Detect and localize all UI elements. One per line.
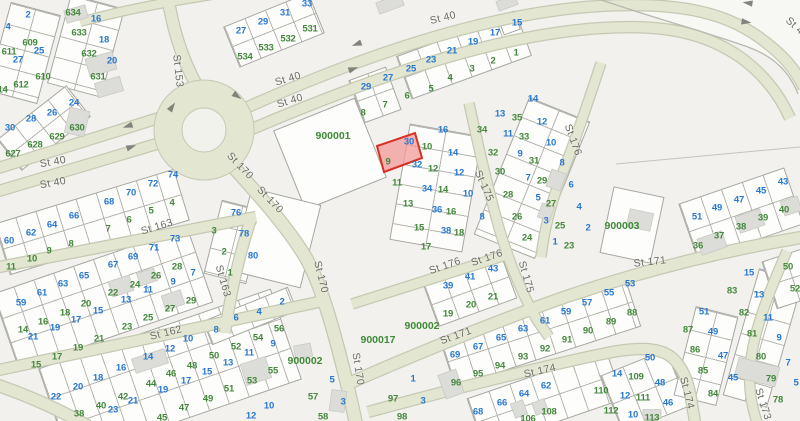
parcel-number-label: 16 (438, 125, 448, 136)
parcel-number-label: 65 (496, 333, 506, 344)
parcel-number-label: 23 (426, 55, 436, 66)
parcel-number-label: 52 (790, 284, 800, 295)
parcel-number-label: 21 (488, 292, 498, 303)
parcel-number-label: 85 (698, 366, 708, 377)
parcel-number-label: 65 (79, 271, 89, 282)
parcel-number-label: 93 (518, 352, 528, 363)
parcel-number-label: 7 (382, 100, 387, 111)
parcel-number-label: 50 (645, 353, 655, 364)
parcel-number-label: 5 (329, 375, 334, 386)
parcel-number-label: 70 (126, 188, 136, 199)
parcel-number-label: 18 (99, 35, 109, 46)
parcel-number-label: 79 (766, 374, 776, 385)
parcel-number-label: 46 (166, 369, 176, 380)
parcel-number-label: 631 (90, 72, 105, 83)
parcel-number-label: 80 (248, 251, 258, 262)
parcel-number-label: 46 (663, 398, 673, 409)
parcel-number-label: 44 (146, 379, 156, 390)
parcel-number-label: 27 (546, 199, 556, 210)
parcel-number-label: 38 (736, 222, 746, 233)
parcel-number-label: 64 (519, 389, 529, 400)
parcel-number-label: 4 (576, 202, 581, 213)
parcel-number-label: 610 (35, 72, 50, 83)
parcel-number-label: 13 (403, 199, 413, 210)
street-name-label: St 176 (428, 255, 463, 277)
parcel-number-label: 18 (60, 308, 70, 319)
parcel-number-label: 24 (130, 280, 140, 291)
parcel-number-label: 32 (488, 148, 498, 159)
parcel-number-label: 62 (26, 228, 36, 239)
parcel-number-label: 28 (172, 262, 182, 273)
parcel-number-label: 21 (94, 334, 104, 345)
parcel-number-label: 20 (107, 56, 117, 67)
parcel-number-label: 8 (360, 108, 365, 119)
parcel-number-label: 62 (541, 381, 551, 392)
parcel-number-label: 630 (69, 123, 84, 134)
street-name-label: St 170 (311, 260, 331, 295)
parcel-number-label: 10 (264, 401, 274, 412)
parcel-number-label: 27 (165, 304, 175, 315)
parcel-number-label: 25 (143, 313, 153, 324)
parcel-number-label: 21 (447, 46, 457, 57)
parcel-number-label: 13 (495, 109, 505, 120)
parcel-number-label: 47 (734, 195, 744, 206)
parcel-number-label: 25 (406, 64, 416, 75)
parcel-number-label: 55 (604, 288, 614, 299)
parcel-number-label: 19 (468, 37, 478, 48)
parcel-number-label: 50 (783, 262, 793, 273)
street-name-label: St 40 (274, 69, 303, 88)
district-code-label: 900002 (404, 320, 439, 332)
parcel-number-label: 6 (233, 313, 238, 324)
parcel-number-label: 7 (525, 173, 530, 184)
map-canvas[interactable]: 6341663318632206312460925611276106126142… (0, 0, 800, 421)
parcel-number-label: 61 (37, 288, 47, 299)
parcel-number-label: 97 (388, 394, 398, 405)
parcel-number-label: 3 (420, 396, 425, 407)
parcel-number-label: 43 (778, 177, 788, 188)
parcel-number-label: 78 (773, 395, 783, 406)
street-name-label: St 176 (562, 123, 584, 158)
parcel-number-label: 72 (148, 179, 158, 190)
parcel-number-label: 26 (151, 271, 161, 282)
parcel-number-label: 18 (454, 228, 464, 239)
parcel-number-label: 59 (561, 307, 571, 318)
parcel-number-label: 67 (473, 342, 483, 353)
parcel-number-label: 4 (256, 307, 261, 318)
parcel-number-label: 49 (712, 203, 722, 214)
parcel-number-label: 51 (224, 384, 234, 395)
parcel-number-label: 20 (73, 382, 83, 393)
parcel-number-label: 54 (253, 333, 263, 344)
parcel-number-label: 634 (65, 8, 80, 19)
parcel-number-label: 61 (540, 316, 550, 327)
parcel-number-label: 33 (302, 0, 312, 10)
parcel-number-label: 18 (93, 373, 103, 384)
parcel-number-label: 53 (247, 376, 257, 387)
parcel-number-label: 29 (537, 176, 547, 187)
street-name-label: St 171 (633, 254, 667, 269)
parcel-number-label: 2 (279, 297, 284, 308)
parcel-number-label: 11 (244, 348, 254, 359)
parcel-number-label: 112 (604, 406, 619, 417)
street-name-label: St 170 (224, 150, 255, 182)
parcel-number-label: 53 (625, 279, 635, 290)
parcel-number-label: 11 (143, 285, 153, 296)
parcel-number-label: 20 (466, 300, 476, 311)
street-name-label: St 153 (170, 54, 185, 88)
parcel-number-label: 74 (168, 170, 178, 181)
parcel-number-label: 38 (74, 409, 84, 420)
parcel-number-label: 629 (49, 132, 64, 143)
parcel-number-label: 4 (169, 198, 174, 209)
parcel-number-label: 47 (179, 403, 189, 414)
parcel-number-label: 5 (148, 206, 153, 217)
parcel-number-label: 45 (728, 373, 738, 384)
parcel-number-label: 16 (446, 207, 456, 218)
parcel-number-label: 13 (754, 290, 764, 301)
parcel-number-label: 64 (47, 220, 57, 231)
parcel-number-label: 84 (708, 389, 718, 400)
street-name-label: St 162 (149, 323, 184, 343)
parcel-number-label: 19 (158, 385, 168, 396)
parcel-number-label: 40 (96, 401, 106, 412)
parcel-number-label: 24 (522, 233, 532, 244)
parcel-number-label: 1 (552, 237, 557, 248)
parcel-number-label: 73 (170, 234, 180, 245)
parcel-number-label: 59 (16, 298, 26, 309)
street-name-label: St 40 (39, 175, 67, 191)
parcel-number-label: 15 (93, 306, 103, 317)
parcel-number-label: 55 (268, 366, 278, 377)
parcel-number-label: 66 (497, 398, 507, 409)
parcel-number-label: 109 (628, 372, 643, 383)
parcel-number-label: 86 (690, 345, 700, 356)
parcel-number-label: 22 (51, 392, 61, 403)
parcel-number-label: 111 (636, 393, 650, 404)
parcel-number-label: 12 (165, 344, 175, 355)
parcel-number-label: 9 (385, 157, 390, 168)
parcel-number-label: 56 (274, 324, 284, 335)
parcel-number-label: 14 (448, 148, 458, 159)
parcel-number-label: 628 (27, 140, 42, 151)
parcel-number-label: 98 (397, 412, 407, 421)
parcel-number-label: 106 (520, 414, 535, 421)
parcel-number-label: 25 (34, 46, 44, 57)
street-name-label: St 40 (429, 9, 458, 27)
parcel-number-label: 12 (428, 164, 438, 175)
parcel-number-label: 81 (747, 329, 757, 340)
parcel-number-label: 16 (116, 363, 126, 374)
parcel-number-label: 10 (463, 189, 473, 200)
parcel-number-label: 91 (562, 335, 572, 346)
parcel-number-label: 8 (213, 325, 218, 336)
parcel-number-label: 17 (52, 352, 62, 363)
parcel-number-label: 110 (594, 386, 609, 397)
parcel-number-label: 24 (69, 98, 79, 109)
parcel-number-label: 48 (187, 361, 197, 372)
parcel-number-label: 96 (451, 378, 461, 389)
parcel-number-label: 5 (428, 84, 433, 95)
parcel-number-label: 9 (270, 339, 275, 350)
parcel-number-label: 36 (693, 241, 703, 252)
parcel-number-label: 532 (280, 34, 295, 45)
parcel-number-label: 3 (469, 64, 474, 75)
parcel-number-label: 34 (477, 125, 487, 136)
parcel-number-label: 7 (190, 268, 195, 279)
parcel-number-label: 8 (68, 239, 73, 250)
parcel-number-label: 27 (236, 26, 246, 37)
parcel-number-label: 30 (404, 137, 414, 148)
parcel-number-label: 9 (776, 333, 781, 344)
parcel-number-label: 49 (203, 394, 213, 405)
parcel-number-label: 9 (46, 246, 51, 257)
parcel-number-label: 633 (71, 28, 86, 39)
parcel-number-label: 23 (564, 241, 574, 252)
parcel-number-label: 1 (410, 374, 415, 385)
parcel-number-label: 94 (495, 361, 505, 372)
street-name-label: St 175 (516, 260, 537, 295)
parcel-number-label: 6 (568, 180, 573, 191)
parcel-number-label: 27 (383, 73, 393, 84)
parcel-number-label: 8 (559, 158, 564, 169)
street-name-label: St 40 (39, 154, 67, 170)
parcel-number-label: 10 (628, 410, 638, 421)
parcel-number-label: 26 (47, 108, 57, 119)
district-code-label: 900003 (604, 220, 639, 232)
parcel-number-label: 45 (157, 413, 167, 421)
parcel-number-label: 58 (318, 412, 328, 421)
parcel-number-label: 28 (26, 114, 36, 125)
parcel-number-label: 49 (708, 327, 718, 338)
parcel-number-label: 627 (5, 149, 20, 160)
parcel-number-label: 69 (128, 252, 138, 263)
parcel-number-label: 42 (118, 392, 128, 403)
parcel-number-label: 17 (421, 242, 431, 253)
parcel-number-label: 90 (583, 326, 593, 337)
parcel-number-label: 11 (503, 129, 513, 140)
parcel-number-label: 66 (69, 211, 79, 222)
parcel-number-label: 10 (546, 138, 556, 149)
parcel-number-label: 36 (432, 205, 442, 216)
parcel-number-label: 3 (340, 397, 345, 408)
parcel-number-label: 21 (28, 332, 38, 343)
street-name-label: St 40 (783, 15, 800, 42)
parcel-number-label: 26 (512, 212, 522, 223)
parcel-number-label: 31 (529, 156, 539, 167)
parcel-number-label: 78 (239, 229, 249, 240)
parcel-number-label: 19 (443, 309, 453, 320)
parcel-number-label: 12 (537, 117, 547, 128)
parcel-number-label: 13 (121, 295, 131, 306)
parcel-number-label: 29 (186, 296, 196, 307)
district-code-label: 900002 (287, 355, 322, 367)
parcel-number-label: 87 (683, 325, 693, 336)
parcel-number-label: 2 (25, 10, 30, 21)
parcel-number-label: 2 (490, 56, 495, 67)
street-name-label: St 175 (472, 169, 496, 204)
parcel-number-label: 23 (122, 322, 132, 333)
street-name-label: St 171 (439, 325, 474, 347)
map-labels-layer: 6341663318632206312460925611276106126142… (0, 0, 800, 421)
parcel-number-label: 63 (518, 324, 528, 335)
parcel-number-label: 83 (727, 286, 737, 297)
parcel-number-label: 71 (149, 243, 159, 254)
parcel-number-label: 41 (465, 272, 475, 283)
parcel-number-label: 533 (258, 43, 273, 54)
parcel-number-label: 32 (412, 160, 422, 171)
parcel-number-label: 11 (392, 178, 402, 189)
parcel-number-label: 92 (540, 344, 550, 355)
parcel-number-label: 10 (183, 334, 193, 345)
street-name-label: St 170 (254, 184, 285, 216)
parcel-number-label: 8 (479, 212, 484, 223)
parcel-number-label: 51 (692, 212, 702, 223)
parcel-number-label: 108 (541, 407, 556, 418)
parcel-number-label: 11 (763, 313, 773, 324)
parcel-number-label: 6 (126, 215, 131, 226)
parcel-number-label: 12 (454, 168, 464, 179)
parcel-number-label: 12 (620, 391, 630, 402)
parcel-number-label: 89 (606, 317, 616, 328)
district-code-label: 900017 (360, 334, 395, 346)
parcel-number-label: 31 (280, 8, 290, 19)
parcel-number-label: 6 (404, 91, 409, 102)
parcel-number-label: 68 (473, 407, 483, 418)
parcel-number-label: 23 (108, 405, 118, 416)
parcel-number-label: 20 (81, 299, 91, 310)
parcel-number-label: 14 (612, 369, 622, 380)
parcel-number-label: 15 (744, 268, 754, 279)
parcel-number-label: 17 (181, 376, 191, 387)
parcel-number-label: 3 (211, 226, 216, 237)
street-name-label: St 173 (752, 387, 774, 421)
parcel-number-label: 57 (308, 392, 318, 403)
parcel-number-label: 43 (488, 264, 498, 275)
parcel-number-label: 48 (655, 378, 665, 389)
parcel-number-label: 39 (758, 213, 768, 224)
parcel-number-label: 5 (535, 193, 540, 204)
parcel-number-label: 51 (699, 307, 709, 318)
parcel-number-label: 25 (555, 221, 565, 232)
parcel-number-label: 45 (756, 186, 766, 197)
parcel-number-label: 614 (0, 85, 8, 96)
parcel-number-label: 19 (50, 323, 60, 334)
parcel-number-label: 13 (223, 358, 233, 369)
parcel-number-label: 67 (108, 260, 118, 271)
parcel-number-label: 82 (739, 308, 749, 319)
parcel-number-label: 534 (237, 52, 252, 63)
parcel-number-label: 22 (108, 288, 118, 299)
parcel-number-label: 16 (91, 14, 101, 25)
parcel-number-label: 14 (18, 325, 28, 336)
parcel-number-label: 15 (202, 367, 212, 378)
parcel-number-label: 4 (5, 22, 10, 33)
parcel-number-label: 35 (512, 113, 522, 124)
parcel-number-label: 39 (443, 281, 453, 292)
parcel-number-label: 11 (6, 262, 16, 273)
parcel-number-label: 14 (438, 185, 448, 196)
parcel-number-label: 113 (645, 413, 660, 421)
parcel-number-label: 612 (13, 80, 28, 91)
district-code-label: 900001 (315, 130, 350, 142)
parcel-number-label: 38 (441, 226, 451, 237)
parcel-number-label: 29 (258, 17, 268, 28)
parcel-number-label: 19 (73, 343, 83, 354)
parcel-number-label: 14 (528, 94, 538, 105)
parcel-number-label: 15 (512, 18, 522, 29)
parcel-number-label: 34 (422, 184, 432, 195)
street-name-label: St 174 (523, 361, 558, 380)
parcel-number-label: 30 (5, 123, 15, 134)
parcel-number-label: 33 (519, 132, 529, 143)
parcel-number-label: 17 (71, 315, 81, 326)
parcel-number-label: 9 (517, 149, 522, 160)
parcel-number-label: 21 (128, 396, 138, 407)
parcel-number-label: 9 (170, 277, 175, 288)
parcel-number-label: 76 (231, 208, 241, 219)
parcel-number-label: 2 (585, 223, 590, 234)
parcel-number-label: 63 (58, 279, 68, 290)
parcel-number-label: 531 (302, 24, 317, 35)
parcel-number-label: 69 (450, 350, 460, 361)
street-name-label: St 174 (677, 376, 697, 411)
parcel-number-label: 7 (785, 358, 790, 369)
parcel-number-label: 15 (31, 360, 41, 371)
street-name-label: St 40 (276, 91, 305, 110)
parcel-number-label: 4 (447, 73, 452, 84)
parcel-number-label: 3 (543, 216, 548, 227)
parcel-number-label: 60 (4, 236, 14, 247)
parcel-number-label: 5 (793, 378, 798, 389)
parcel-number-label: 30 (495, 167, 505, 178)
parcel-number-label: 68 (104, 197, 114, 208)
parcel-number-label: 7 (105, 224, 110, 235)
parcel-number-label: 95 (473, 369, 483, 380)
parcel-number-label: 12 (246, 411, 256, 421)
parcel-number-label: 2 (221, 247, 226, 258)
parcel-number-label: 47 (718, 351, 728, 362)
parcel-number-label: 52 (231, 342, 241, 353)
parcel-number-label: 57 (582, 298, 592, 309)
parcel-number-label: 17 (490, 28, 500, 39)
parcel-number-label: 40 (779, 205, 789, 216)
parcel-number-label: 16 (38, 317, 48, 328)
parcel-number-label: 27 (13, 55, 23, 66)
parcel-number-label: 37 (714, 231, 724, 242)
parcel-number-label: 50 (209, 351, 219, 362)
parcel-number-label: 88 (627, 308, 637, 319)
parcel-number-label: 80 (756, 352, 766, 363)
parcel-number-label: 14 (143, 352, 153, 363)
street-name-label: St 170 (350, 352, 367, 386)
parcel-number-label: 1 (513, 48, 518, 59)
parcel-number-label: 29 (361, 82, 371, 93)
parcel-number-label: 10 (27, 254, 37, 265)
parcel-number-label: 15 (414, 223, 424, 234)
parcel-number-label: 10 (422, 142, 432, 153)
parcel-number-label: 28 (503, 190, 513, 201)
parcel-number-label: 632 (81, 49, 96, 60)
